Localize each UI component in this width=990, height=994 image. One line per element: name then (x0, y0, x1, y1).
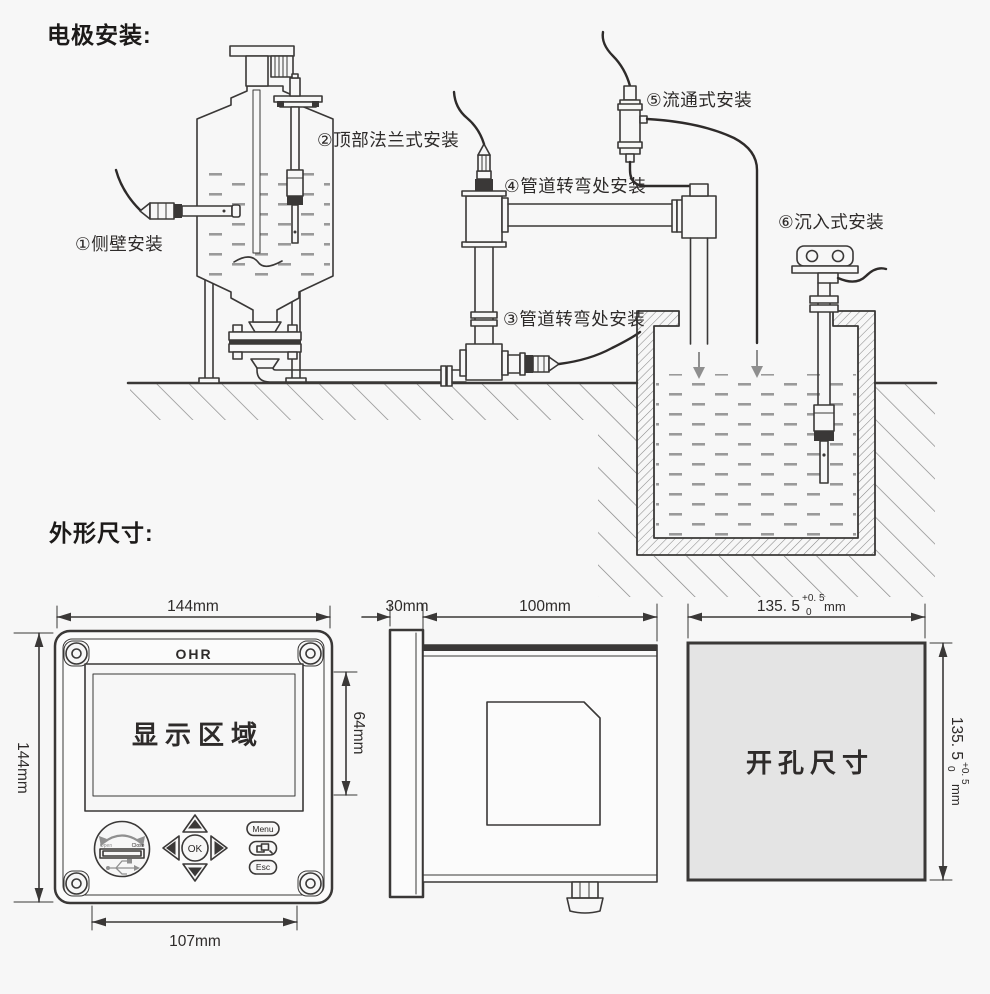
usb-cover: Open Close (95, 822, 150, 877)
svg-text:135. 5: 135. 5 (948, 717, 965, 760)
ok-key-label: OK (188, 844, 203, 855)
dim-body-depth: 100mm (519, 598, 571, 615)
pipe-bend-electrode-3 (508, 332, 640, 375)
installation-label-5: ⑤流通式安装 (646, 87, 752, 112)
installation-label-1: ①侧壁安装 (75, 231, 163, 256)
dim-display-height: 64mm (350, 711, 367, 754)
screen-switch-key (250, 842, 277, 856)
diagram-page: OHR 显示区域 Open Close (0, 0, 990, 994)
dim-cutout-height: 135. 5 +0. 5 0 mm (945, 717, 970, 806)
cutout-view: 开孔尺寸 (688, 643, 925, 880)
pipe-bend-electrode-4 (454, 92, 493, 191)
section-title-electrode-installation: 电极安装: (47, 16, 152, 50)
dim-mount-width: 107mm (169, 933, 221, 950)
diagram-canvas: OHR 显示区域 Open Close (0, 0, 990, 994)
display-area: 显示区域 (85, 664, 303, 811)
svg-text:mm: mm (824, 599, 846, 614)
dim-front-width: 144mm (167, 598, 219, 615)
brand-logo: OHR (175, 646, 212, 662)
svg-text:0: 0 (806, 607, 812, 618)
ok-key: OK (182, 835, 208, 861)
cutout-label: 开孔尺寸 (746, 749, 874, 779)
svg-text:mm: mm (949, 784, 964, 806)
installation-label-6: ⑥沉入式安装 (778, 209, 884, 234)
storage-tank (197, 46, 333, 322)
screw-icon (64, 871, 89, 896)
cable-gland (567, 882, 603, 913)
installation-label-3: ③管道转弯处安装 (503, 306, 645, 331)
dim-front-height: 144mm (14, 742, 31, 794)
esc-key-label: Esc (256, 862, 271, 872)
svg-text:+0. 5: +0. 5 (959, 762, 970, 785)
display-area-label: 显示区域 (132, 721, 264, 751)
menu-key-label: Menu (252, 824, 274, 834)
esc-key: Esc (250, 861, 277, 875)
usb-open-label: Open (100, 843, 112, 849)
side-view (390, 630, 657, 913)
menu-key: Menu (247, 822, 279, 836)
usb-close-label: Close (132, 843, 145, 849)
tank-outlet-pipe (229, 322, 466, 386)
front-view: OHR 显示区域 Open Close (55, 631, 332, 903)
tank-liquid (200, 172, 330, 276)
dim-bezel-depth: 30mm (385, 598, 428, 615)
svg-text:135. 5: 135. 5 (757, 598, 800, 615)
screw-icon (64, 641, 89, 666)
screw-icon (298, 871, 323, 896)
section-title-outline-dimensions: 外形尺寸: (49, 514, 154, 548)
basin (637, 311, 875, 555)
installation-label-4: ④管道转弯处安装 (504, 173, 646, 198)
svg-text:+0. 5: +0. 5 (802, 593, 825, 604)
installation-label-2: ②顶部法兰式安装 (317, 127, 459, 152)
drain-pipe (677, 184, 716, 344)
svg-text:0: 0 (945, 766, 956, 772)
screw-icon (298, 641, 323, 666)
